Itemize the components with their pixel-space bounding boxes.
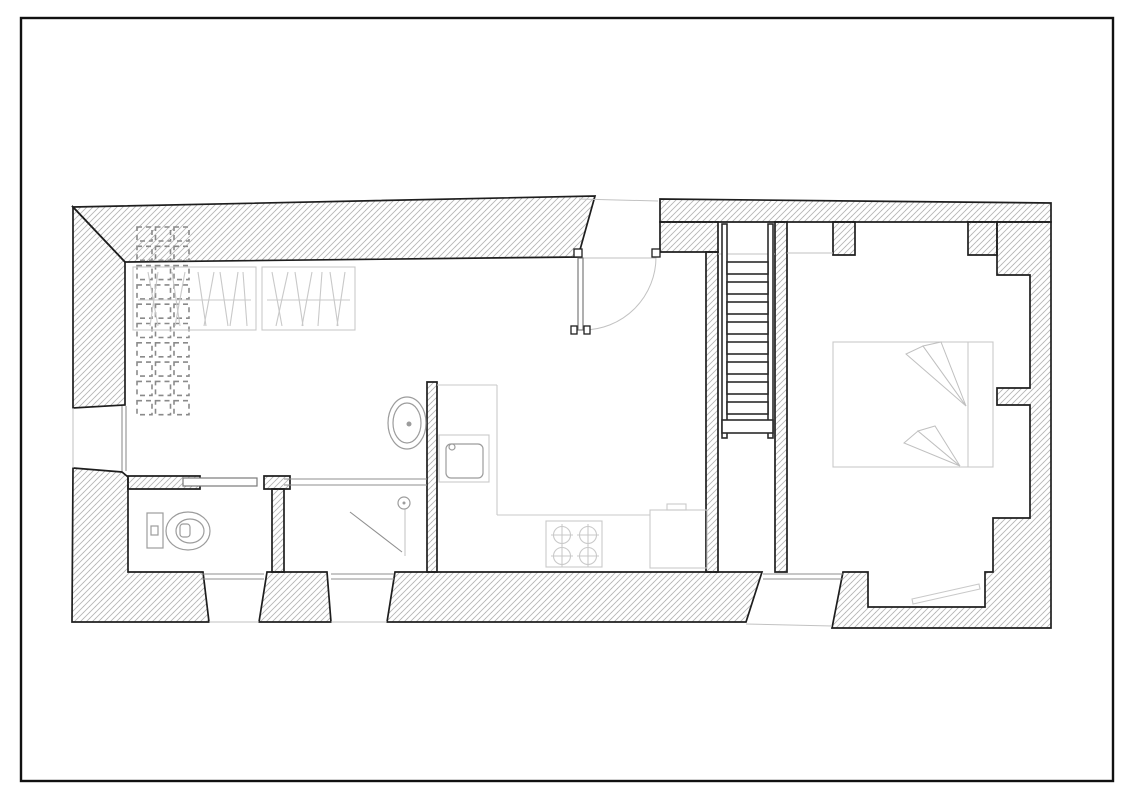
- wall-top-east-band: [660, 199, 1051, 222]
- stair-step-2: [727, 282, 768, 294]
- stair-step-1: [727, 262, 768, 274]
- shelving-dashed-grid-cell: [137, 362, 152, 376]
- shelving-dashed-grid-cell: [156, 381, 171, 395]
- wardrobe-hanger-15: [330, 272, 338, 326]
- radiator-in-niche: [912, 584, 980, 604]
- fridge: [650, 510, 707, 568]
- wall-toilet-shower-divider: [272, 489, 284, 572]
- shelving-dashed-grid-cell: [174, 401, 189, 415]
- shelving-dashed-grid-cell: [156, 343, 171, 357]
- shelving-dashed-grid-cell: [156, 285, 171, 299]
- stair-step-3: [727, 302, 768, 314]
- toilet-sliding-door: [183, 478, 257, 486]
- wardrobe-hanger-16: [337, 272, 345, 326]
- shelving-dashed-grid-cell: [137, 304, 152, 318]
- shelving-dashed-grid-cell: [156, 401, 171, 415]
- entry-door-swing-arc: [583, 257, 656, 330]
- toilet-cistern-button: [151, 526, 158, 535]
- shower-door-diagonal: [350, 512, 402, 552]
- shelving-dashed-grid-cell: [137, 343, 152, 357]
- wall-kitchen-partition: [427, 382, 437, 572]
- shelving-dashed-grid-cell: [174, 266, 189, 280]
- entry-door-stop-left: [571, 326, 577, 334]
- shelving-dashed-grid-cell: [137, 285, 152, 299]
- fridge-handle: [667, 504, 686, 510]
- wardrobe-hanger-13: [302, 272, 312, 326]
- wall-bedroom-top-pier-east: [968, 222, 997, 255]
- shelving-dashed-grid-cell: [174, 381, 189, 395]
- shelving-dashed-grid-cell: [137, 401, 152, 415]
- bed: [833, 342, 993, 467]
- wall-top-east-inner: [660, 222, 718, 252]
- shower-drain-dot: [403, 502, 406, 505]
- wall-right-mass: [832, 222, 1051, 628]
- stair-step-8: [727, 402, 768, 414]
- sheet-border: [21, 18, 1113, 781]
- stair-step-4: [727, 322, 768, 334]
- stair-base: [722, 420, 773, 433]
- wardrobe-hanger-7: [220, 272, 228, 326]
- wall-pier-south-1: [259, 572, 331, 622]
- entry-door-stop-right: [584, 326, 590, 334]
- washbasin-drain: [407, 422, 412, 427]
- wardrobe-hanger-6: [204, 272, 214, 326]
- floor-plan-svg: [0, 0, 1135, 800]
- shelving-dashed-grid-cell: [174, 304, 189, 318]
- shelving-dashed-grid-cell: [137, 266, 152, 280]
- drawing-sheet: [0, 0, 1135, 800]
- shelving-dashed-grid-cell: [174, 362, 189, 376]
- wall-bedroom-top-pier-west: [833, 222, 855, 255]
- entry-door-leaf: [578, 258, 583, 330]
- shelving-dashed-grid-cell: [137, 381, 152, 395]
- stair-step-5: [727, 342, 768, 354]
- floor-plan-root: [21, 18, 1113, 781]
- entry-door-jamb-left: [574, 249, 582, 257]
- wardrobe-hanger-8: [230, 272, 238, 326]
- toilet-flush-mark: [180, 524, 190, 537]
- stair-step-7: [727, 382, 768, 394]
- wardrobe-hanger-11: [276, 272, 288, 326]
- shelving-dashed-grid-cell: [156, 362, 171, 376]
- entry-door-jamb-right: [652, 249, 660, 257]
- window-south-3-outer-line: [746, 624, 832, 626]
- wardrobe-hanger-9: [243, 272, 247, 326]
- shelving-dashed-grid-cell: [156, 304, 171, 318]
- wall-south-mid: [387, 572, 762, 622]
- wall-toilet-front-jamb: [264, 476, 290, 489]
- wardrobe-hanger-10: [272, 272, 282, 326]
- shelving-dashed-grid-cell: [174, 343, 189, 357]
- wardrobe-hanger-5: [198, 272, 206, 326]
- wardrobe-hanger-12: [295, 272, 303, 326]
- wall-stair-bedroom-divider: [775, 222, 787, 572]
- kitchen-sink-faucet: [449, 444, 455, 450]
- wall-living-stair: [706, 252, 718, 572]
- wardrobe-hanger-14: [318, 272, 322, 326]
- stair-step-6: [727, 362, 768, 374]
